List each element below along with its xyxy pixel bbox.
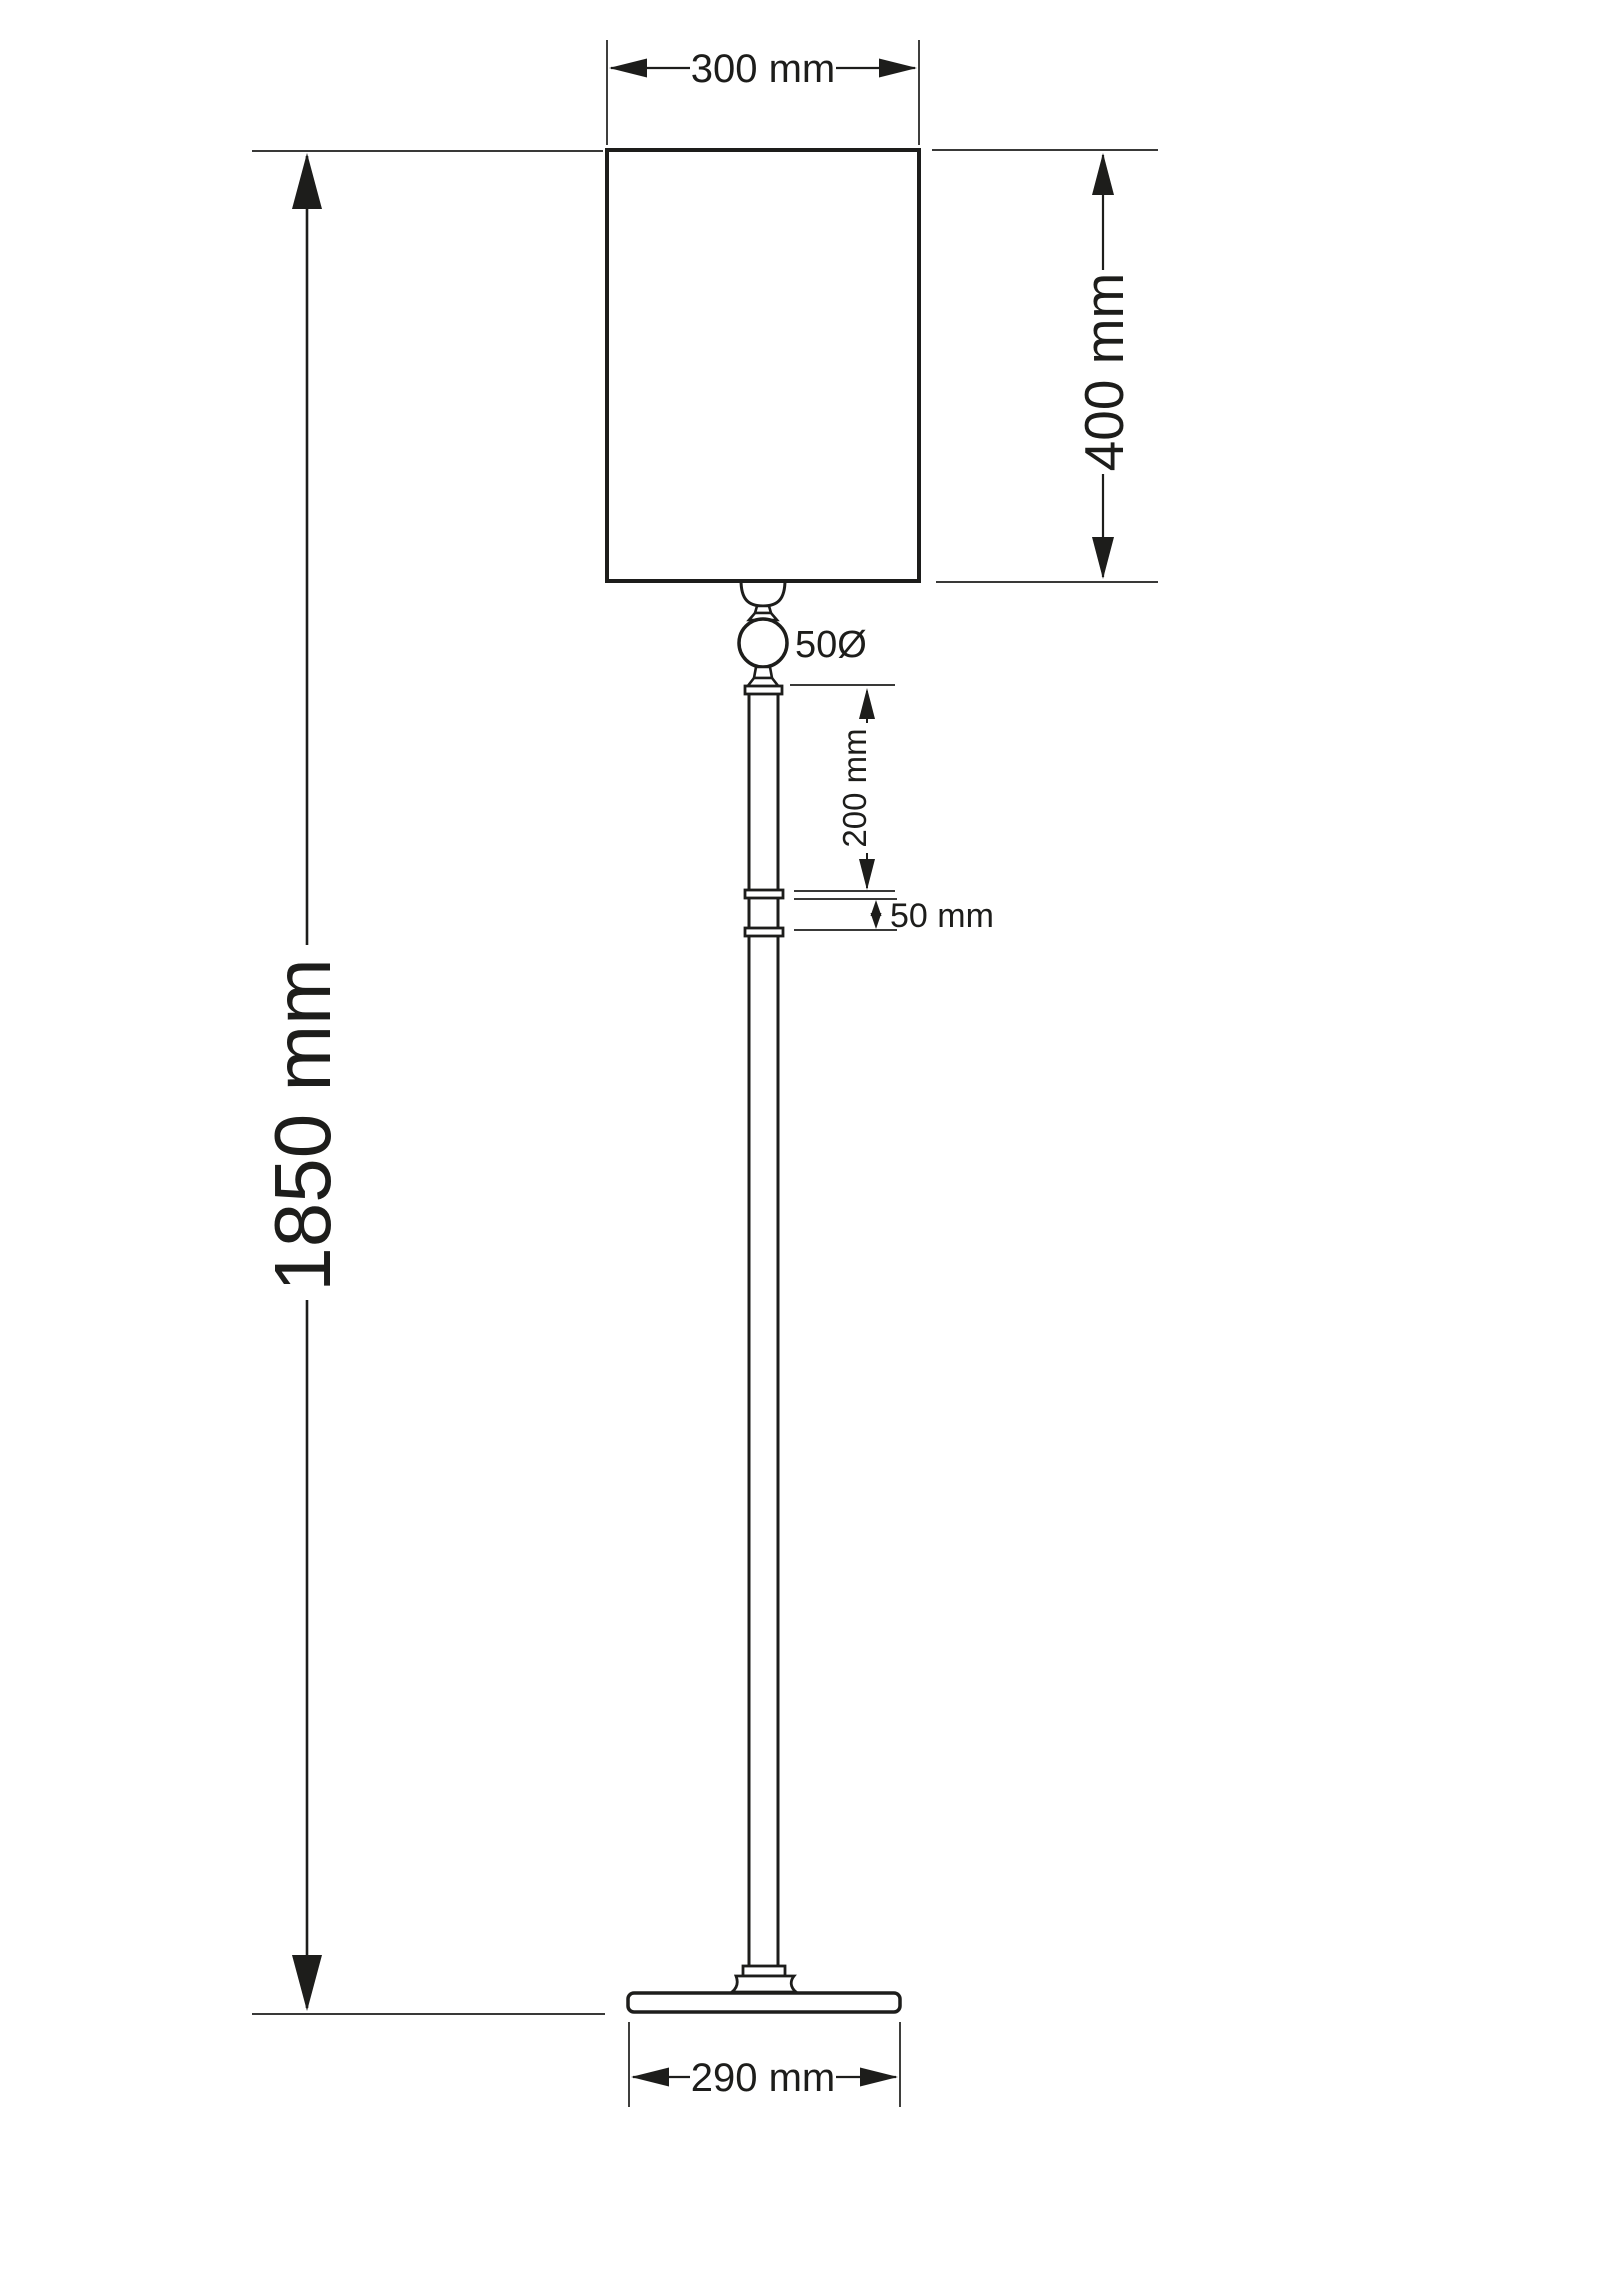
arrow-down-icon [292, 1955, 322, 2011]
arrow-down-icon [1092, 537, 1114, 579]
dimension-upper-pole: 200 mm [836, 688, 875, 890]
base-neck-cap [743, 1966, 785, 1976]
ball-diameter-label: 50Ø [795, 624, 867, 666]
dimension-base-width: 290 mm [631, 2056, 898, 2100]
base-neck [732, 1976, 796, 1992]
lamp-shade [607, 150, 919, 581]
arrow-down-icon [871, 913, 882, 929]
shade-width-label: 300 mm [691, 47, 836, 91]
arrow-left-icon [609, 59, 647, 78]
arrow-right-icon [860, 2068, 898, 2087]
arrow-down-icon [859, 859, 875, 890]
joint-length-label: 50 mm [890, 897, 994, 935]
arrow-up-icon [1092, 153, 1114, 195]
arrow-right-icon [879, 59, 917, 78]
shade-height-label: 400 mm [1073, 273, 1135, 472]
floor-lamp-technical-drawing: 300 mm 400 mm 1850 mm 200 mm [0, 0, 1600, 2270]
upper-pole-length-label: 200 mm [836, 728, 873, 847]
total-height-label: 1850 mm [258, 958, 347, 1291]
ball-lower-neck [754, 667, 772, 678]
arrow-up-icon [292, 153, 322, 209]
dimension-shade-width: 300 mm [609, 47, 917, 91]
arrow-left-icon [631, 2068, 669, 2087]
pole-ring-upper [745, 890, 783, 898]
base-width-label: 290 mm [691, 2056, 836, 2100]
arrow-up-icon [859, 688, 875, 719]
lamp-body [607, 150, 919, 2012]
dimension-total-height: 1850 mm [258, 153, 347, 2011]
decorative-ball [739, 619, 787, 667]
dimension-shade-height: 400 mm [1073, 153, 1135, 579]
pole-ring-lower [745, 928, 783, 936]
pole-top-cap [745, 686, 782, 694]
drawing-canvas: 300 mm 400 mm 1850 mm 200 mm [0, 0, 1600, 2270]
base-plate [628, 1993, 900, 2012]
finial-dome [741, 580, 785, 606]
